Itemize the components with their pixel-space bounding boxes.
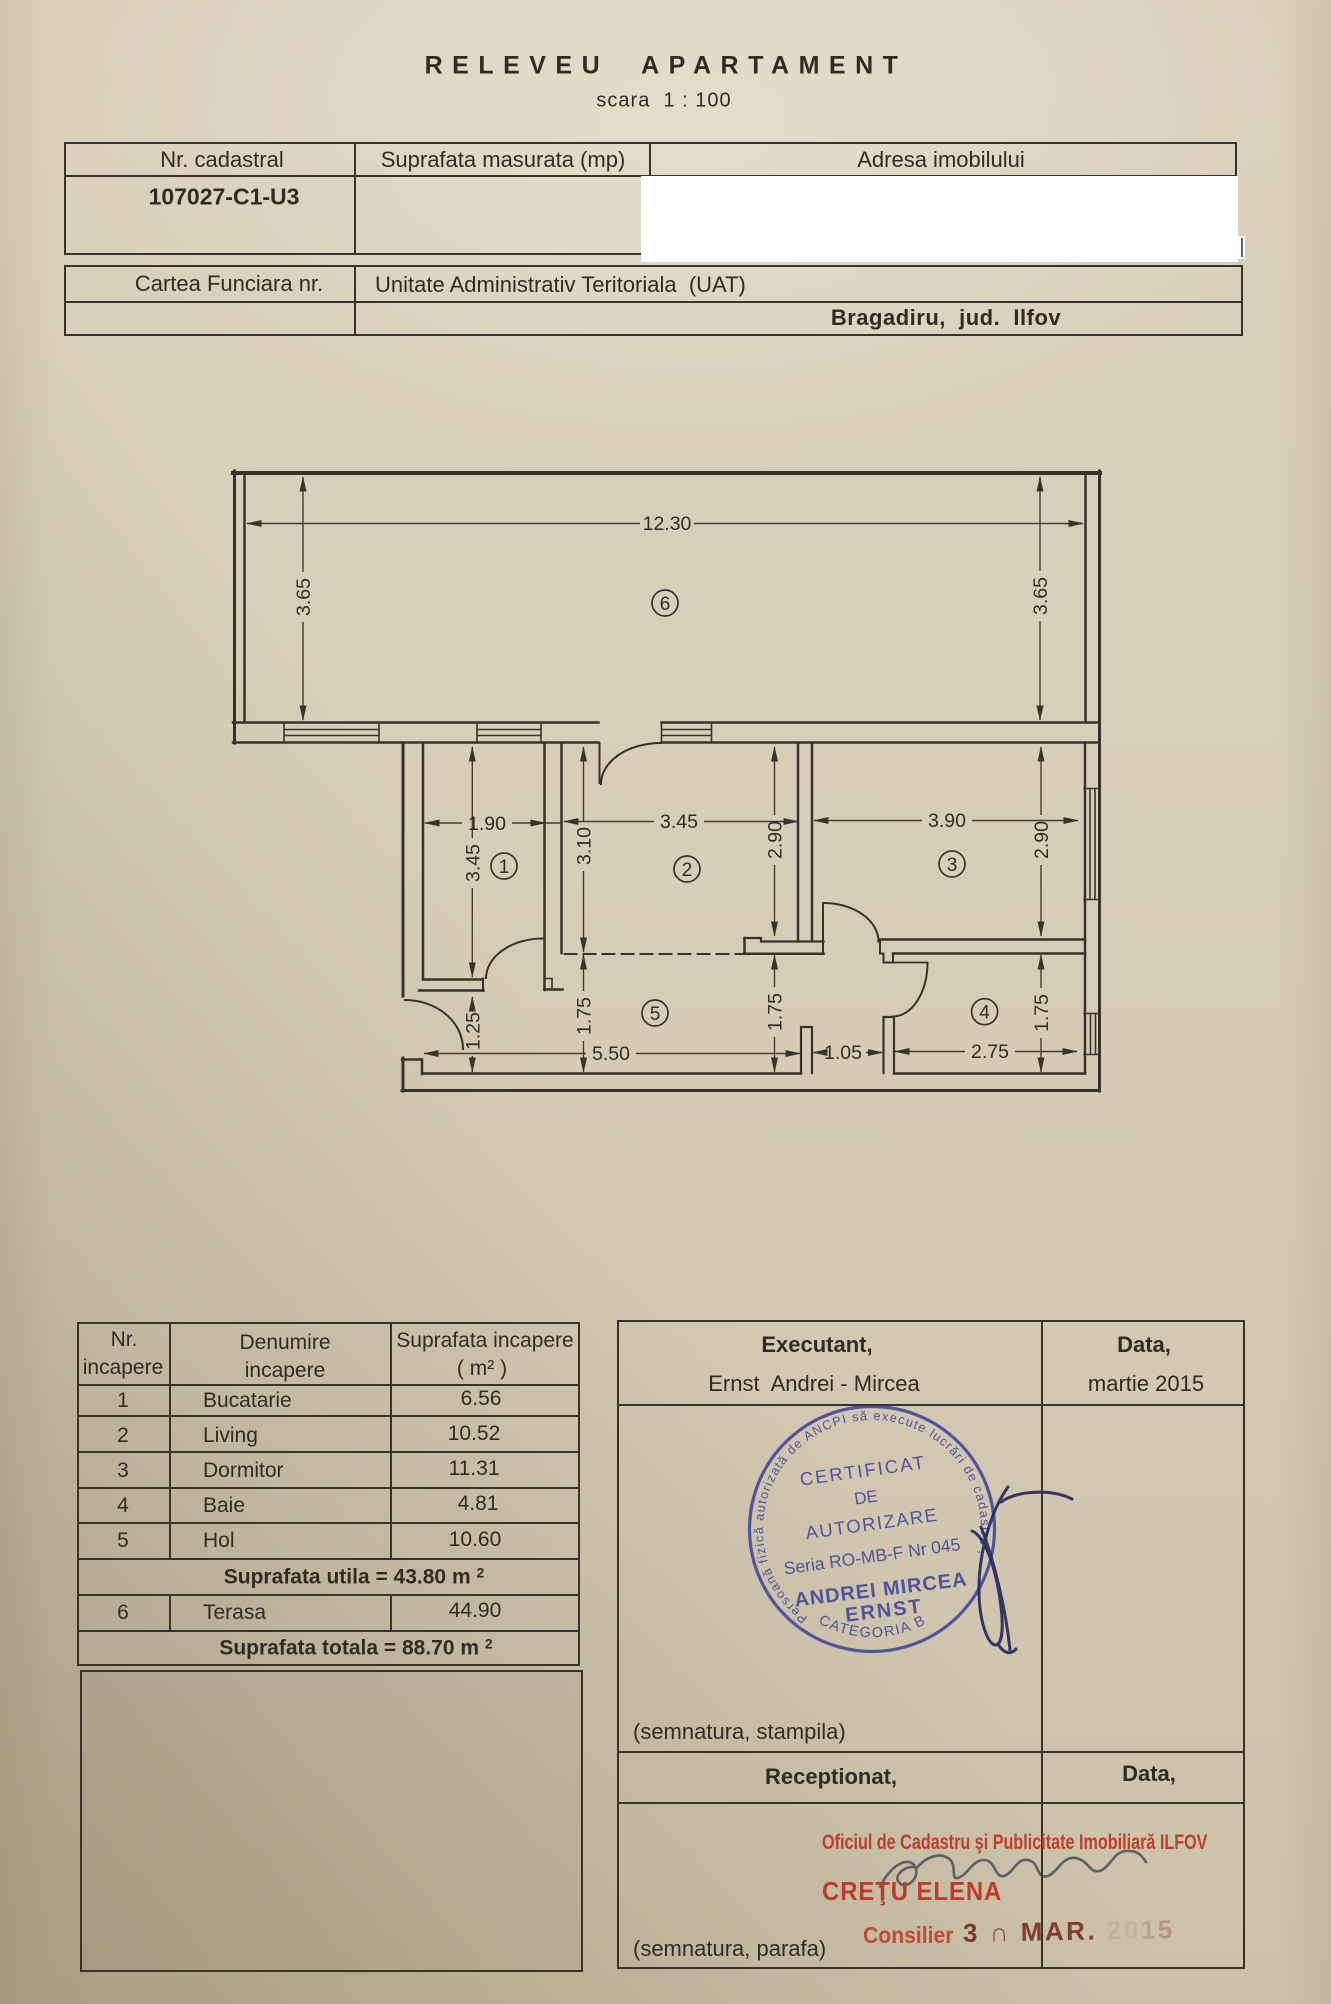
svg-text:5.50: 5.50	[592, 1043, 630, 1065]
svg-text:4: 4	[979, 1003, 990, 1024]
svg-text:1.75: 1.75	[765, 993, 787, 1031]
svg-text:6: 6	[660, 594, 671, 615]
svg-text:1.90: 1.90	[468, 813, 506, 835]
svg-text:3.90: 3.90	[928, 810, 966, 832]
svg-text:1.75: 1.75	[574, 997, 596, 1035]
svg-text:2.90: 2.90	[1031, 821, 1053, 859]
svg-text:1.25: 1.25	[462, 1012, 484, 1050]
svg-text:2.75: 2.75	[971, 1041, 1009, 1063]
svg-text:3.10: 3.10	[574, 827, 596, 865]
svg-text:1.75: 1.75	[1031, 994, 1053, 1032]
svg-text:2: 2	[682, 860, 693, 881]
svg-text:1.05: 1.05	[824, 1042, 862, 1064]
svg-text:3.65: 3.65	[1030, 577, 1052, 615]
svg-text:5: 5	[650, 1004, 661, 1025]
svg-text:3.45: 3.45	[660, 811, 698, 833]
svg-text:12.30: 12.30	[643, 513, 692, 535]
svg-text:2.90: 2.90	[765, 821, 787, 859]
svg-text:3.65: 3.65	[293, 578, 315, 616]
svg-text:1: 1	[499, 857, 510, 878]
svg-text:3: 3	[947, 855, 958, 876]
svg-text:3.45: 3.45	[462, 844, 484, 882]
